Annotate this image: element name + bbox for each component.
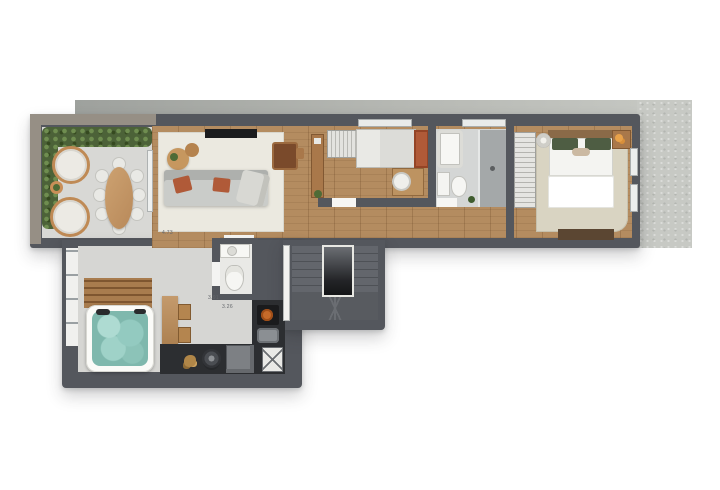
bathroom1-door-opening	[437, 198, 457, 207]
bedroom1-window	[358, 119, 412, 127]
oval-dining-table	[105, 167, 133, 229]
dining-chair	[133, 189, 145, 201]
master-window-2	[630, 184, 638, 212]
sideboard-plant	[314, 190, 322, 198]
terrace-outer-wall-left	[30, 114, 41, 244]
bar-stool-1	[178, 304, 191, 320]
table-lamp-left	[536, 133, 551, 148]
single-bed	[356, 129, 416, 168]
bath-plant	[468, 196, 475, 203]
master-window-1	[630, 148, 638, 176]
dimension-label: 3.26	[222, 305, 233, 310]
bathroom1-window	[462, 119, 506, 127]
prep-sink	[257, 328, 279, 343]
wood-armchair	[272, 142, 298, 170]
terrace-sliding-door	[147, 150, 153, 212]
washbasin	[437, 172, 450, 196]
spa-wood-threshold	[152, 234, 220, 248]
lounge-chair-2	[50, 197, 90, 237]
bedroom1-door-opening	[332, 198, 356, 207]
single-bed-headboard	[414, 130, 429, 168]
hot-tub-pad-1	[96, 309, 110, 315]
bed-folded-duvet	[548, 176, 614, 208]
dining-chair	[131, 208, 143, 220]
toilet	[452, 177, 466, 196]
bar-stool-2	[178, 327, 191, 343]
pan-on-cooktop	[261, 309, 273, 321]
bathroom1-wall-east	[506, 126, 514, 238]
sofa-cushion-terracotta-2	[212, 177, 230, 193]
bottles	[184, 355, 196, 367]
round-grill	[202, 349, 221, 368]
stair-door-open	[283, 245, 290, 321]
double-bed-headboard	[548, 130, 614, 138]
shower-drain	[490, 166, 495, 171]
bathtub	[437, 130, 463, 168]
wc-basin	[228, 247, 236, 255]
x-crate	[262, 347, 283, 372]
terrace-hedge-top	[42, 127, 152, 147]
plant-on-table	[53, 184, 60, 191]
master-wardrobe	[514, 132, 536, 208]
desk-chair	[394, 174, 409, 189]
hot-tub-pad-2	[134, 309, 146, 314]
wc-toilet	[226, 266, 243, 290]
bar-table	[162, 296, 178, 350]
mini-fridge	[226, 345, 254, 373]
bed-accent-pillow	[572, 148, 590, 156]
wc-door-opening	[212, 262, 220, 286]
dimension-label: 3.91	[208, 296, 219, 301]
armchair-side-table	[296, 148, 304, 159]
dimension-label: 4.73	[162, 231, 173, 236]
nightstand-lamp-glow	[615, 134, 623, 142]
bed-pillow-green-2	[585, 138, 611, 150]
coffee-table-small	[185, 143, 199, 157]
lounge-chair-1	[52, 146, 90, 184]
hot-tub-water	[92, 311, 148, 366]
dining-chair	[96, 170, 108, 182]
sideboard-object	[314, 138, 321, 144]
floor-plan-render: 4.73 3.91 3.26	[0, 0, 720, 490]
wood-deck	[84, 278, 152, 308]
tv-panel	[205, 129, 257, 138]
spa-glass-wall	[66, 248, 78, 346]
dining-chair	[131, 170, 143, 182]
slab-concrete-right	[637, 100, 692, 248]
stair-void	[322, 245, 354, 297]
bedroom1-wall-east	[428, 126, 436, 207]
coffee-table-plant	[170, 153, 178, 161]
master-bench	[558, 229, 614, 240]
terrace-outer-wall-top	[30, 114, 156, 125]
